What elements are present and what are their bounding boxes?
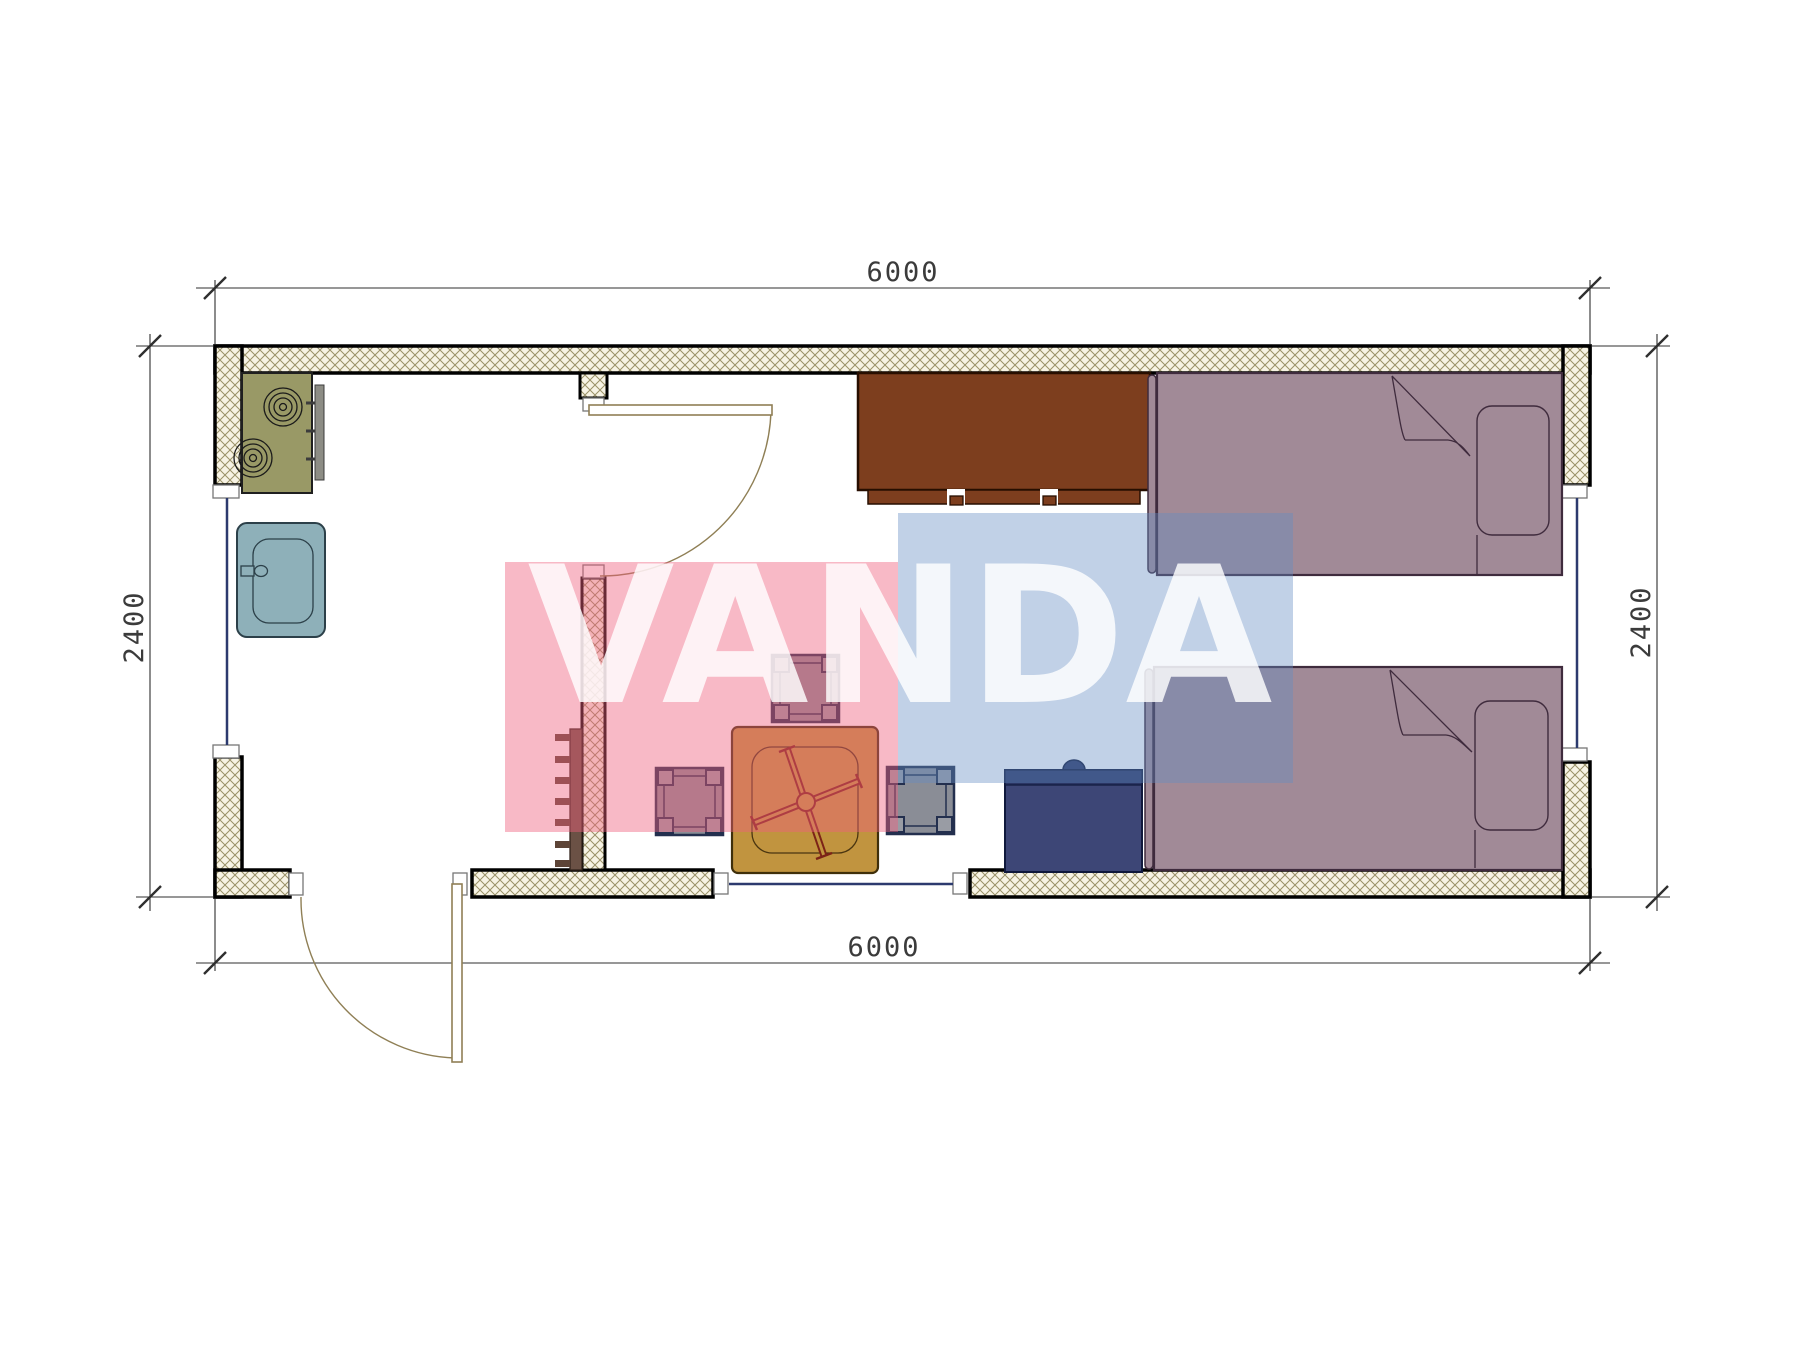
wall-bottom-right (970, 870, 1590, 897)
dimension-bottom: 6000 (196, 899, 1610, 974)
wall-top (215, 346, 1590, 373)
door-stub-wall (580, 373, 607, 398)
dimension-left-label: 2400 (119, 590, 150, 663)
wall-bottom-middle (472, 870, 713, 897)
wall-left-upper (215, 346, 242, 485)
interior-door-leaf (589, 405, 772, 415)
counter-strip (315, 385, 324, 480)
dimension-right-label: 2400 (1626, 585, 1657, 658)
entrance-door (301, 884, 462, 1062)
dimension-top-label: 6000 (866, 257, 939, 288)
watermark-logo-text: VANDA (520, 542, 1280, 742)
wall-bottom-left-arm (215, 870, 290, 897)
wall-right-upper (1563, 346, 1590, 485)
dimension-top: 6000 (196, 257, 1610, 344)
entrance-door-leaf (452, 884, 462, 1062)
dimension-right: 2400 (1592, 334, 1670, 911)
cabinet-handle (1043, 496, 1056, 505)
cabinet-handle (950, 496, 963, 505)
dimension-left: 2400 (119, 334, 213, 911)
sink (237, 523, 325, 637)
pillow (1475, 701, 1548, 830)
floor-plan-page: 6000 6000 2400 2400 (0, 0, 1800, 1350)
wall-right-lower (1563, 762, 1590, 897)
pillow (1477, 406, 1549, 535)
kitchen-cabinet (858, 373, 1150, 505)
stove-cooktop (234, 373, 324, 493)
faucet (241, 566, 254, 576)
dimension-bottom-label: 6000 (847, 932, 920, 963)
